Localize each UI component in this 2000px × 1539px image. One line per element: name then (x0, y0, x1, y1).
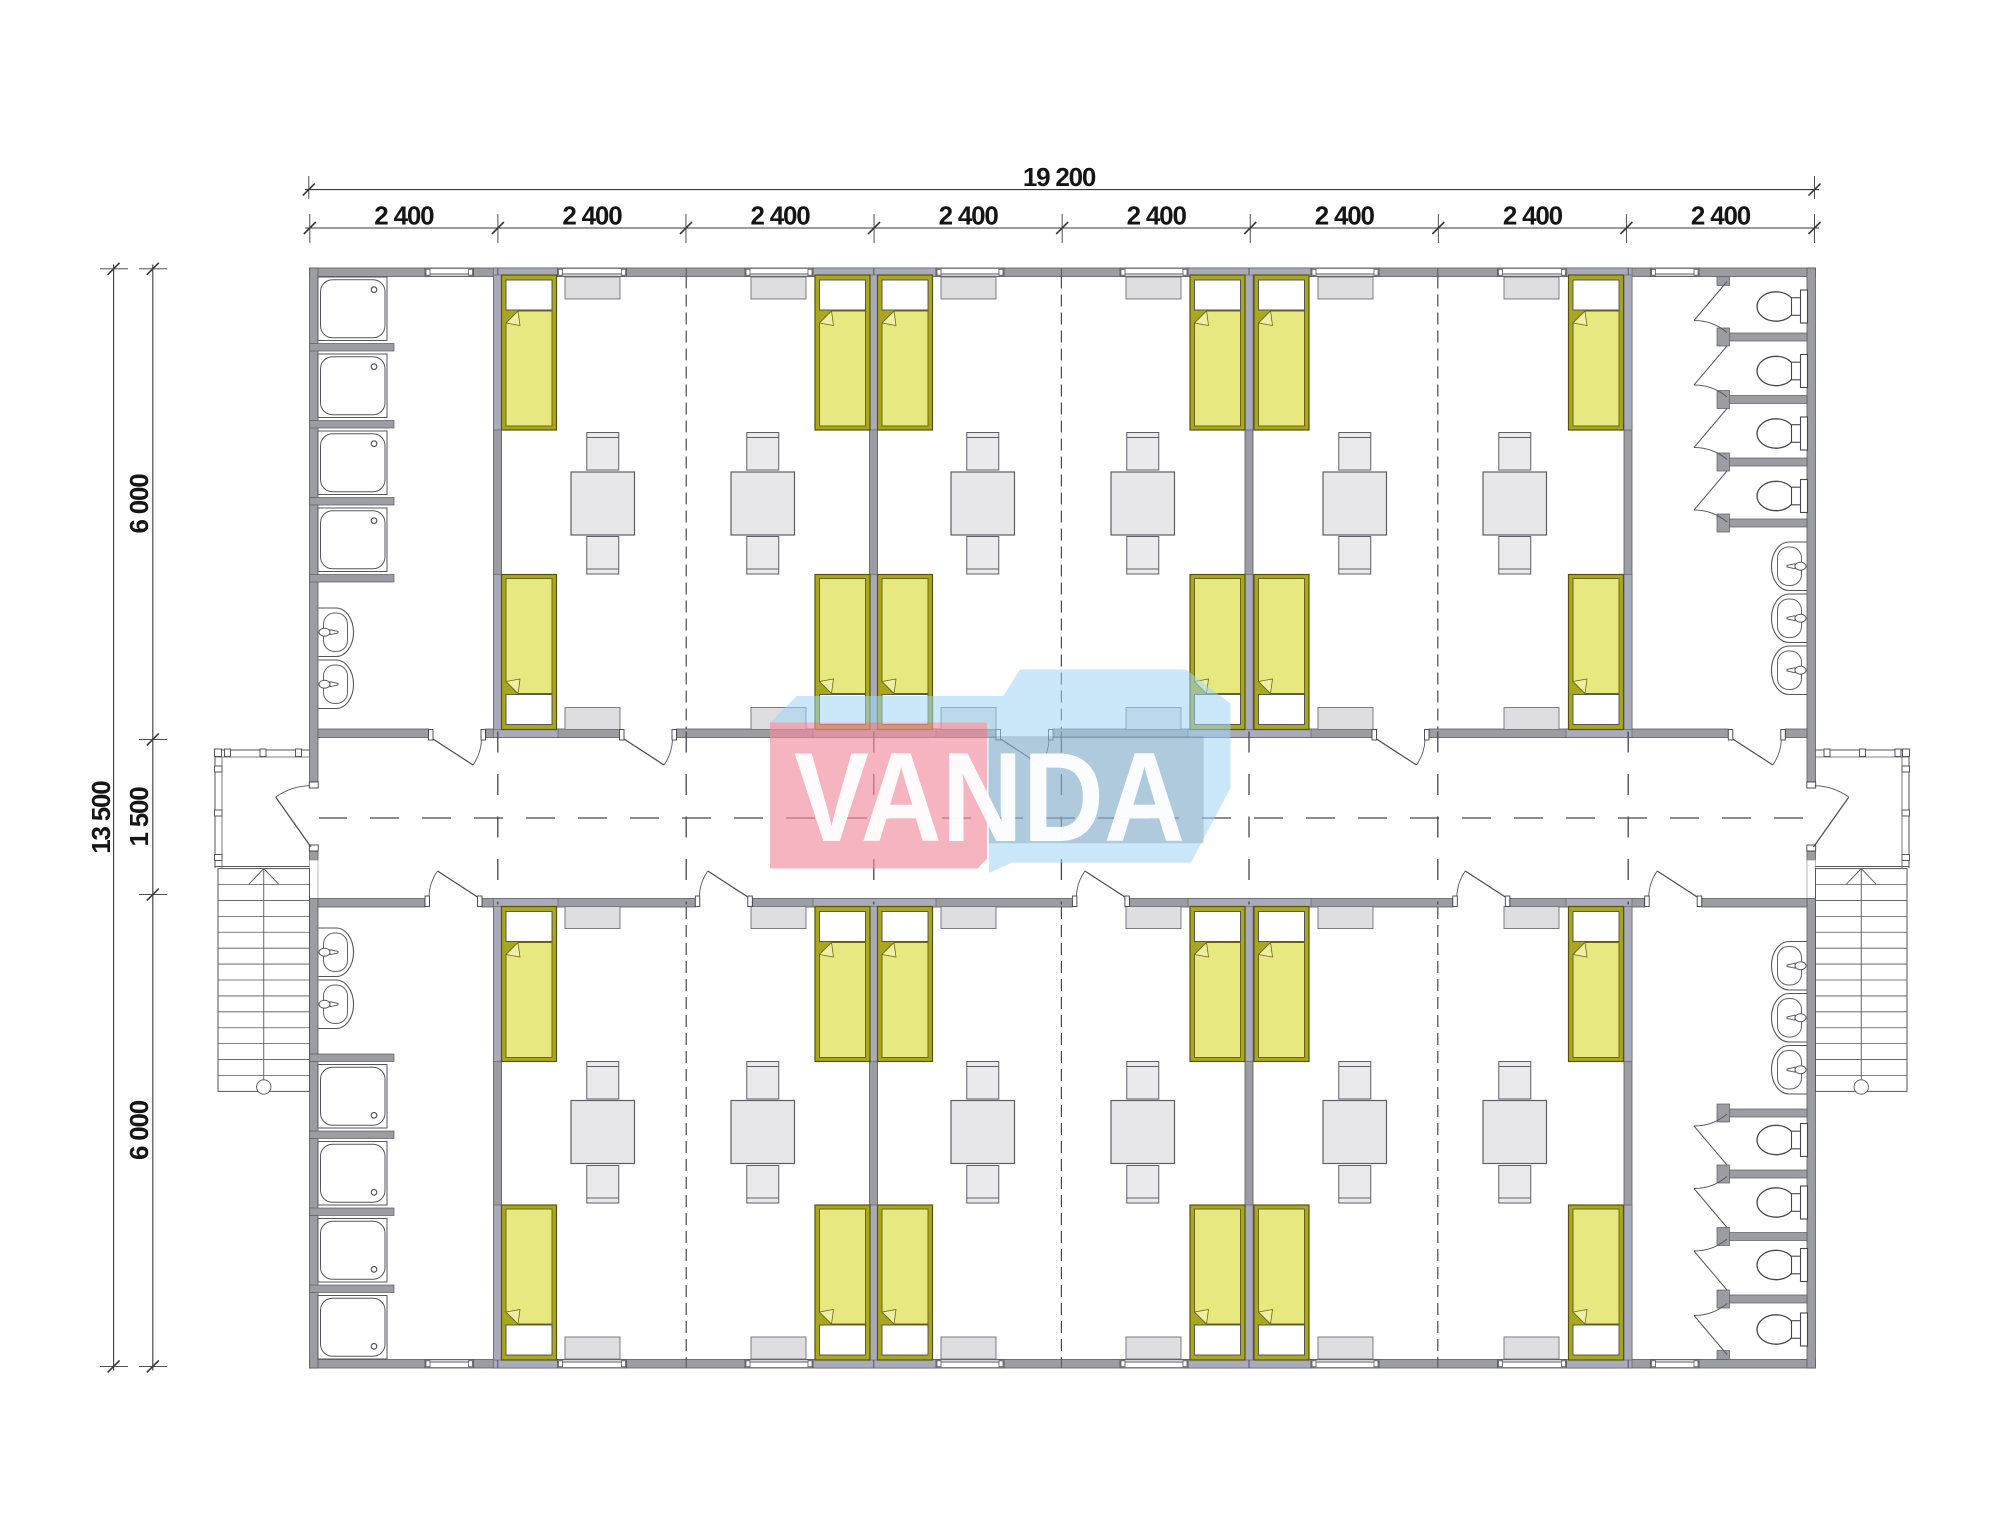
svg-text:2 400: 2 400 (374, 201, 434, 231)
svg-text:2 400: 2 400 (1127, 201, 1187, 231)
svg-text:13 500: 13 500 (86, 781, 116, 854)
svg-text:1 500: 1 500 (124, 787, 154, 847)
svg-text:6 000: 6 000 (124, 474, 154, 534)
svg-text:2 400: 2 400 (939, 201, 999, 231)
svg-text:2 400: 2 400 (1691, 201, 1751, 231)
svg-text:2 400: 2 400 (562, 201, 622, 231)
svg-text:6 000: 6 000 (124, 1100, 154, 1160)
svg-text:19 200: 19 200 (1023, 162, 1096, 192)
svg-text:2 400: 2 400 (750, 201, 810, 231)
svg-text:2 400: 2 400 (1315, 201, 1375, 231)
svg-text:VANDA: VANDA (794, 726, 1185, 868)
svg-text:2 400: 2 400 (1503, 201, 1563, 231)
